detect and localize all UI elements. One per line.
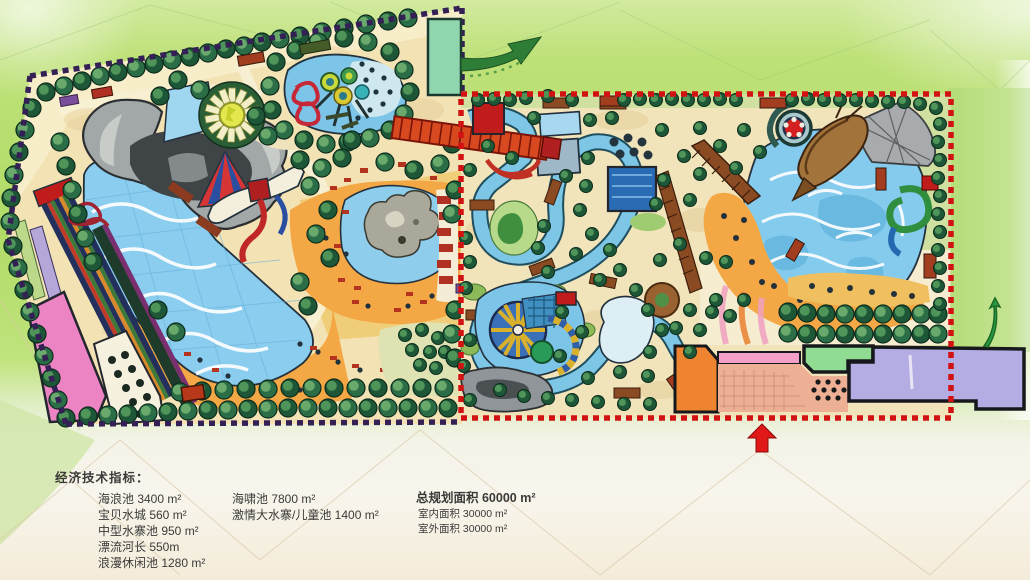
svg-text:海啸池 7800 m²: 海啸池 7800 m² bbox=[232, 491, 315, 506]
svg-text:漂流河长 550m: 漂流河长 550m bbox=[98, 540, 179, 554]
svg-text:经济技术指标：: 经济技术指标： bbox=[55, 470, 150, 485]
svg-text:激情大水寨/儿童池 1400 m²: 激情大水寨/儿童池 1400 m² bbox=[232, 507, 379, 522]
svg-text:室外面积 30000 m²: 室外面积 30000 m² bbox=[418, 522, 508, 535]
svg-text:海浪池 3400 m²: 海浪池 3400 m² bbox=[98, 491, 181, 506]
svg-text:宝贝水城 560 m²: 宝贝水城 560 m² bbox=[98, 508, 187, 522]
svg-text:浪漫休闲池 1280 m²: 浪漫休闲池 1280 m² bbox=[98, 555, 205, 570]
svg-text:室内面积 30000 m²: 室内面积 30000 m² bbox=[418, 507, 508, 520]
svg-text:中型水寨池 950 m²: 中型水寨池 950 m² bbox=[98, 523, 199, 538]
svg-text:总规划面积 60000 m²: 总规划面积 60000 m² bbox=[416, 490, 535, 505]
